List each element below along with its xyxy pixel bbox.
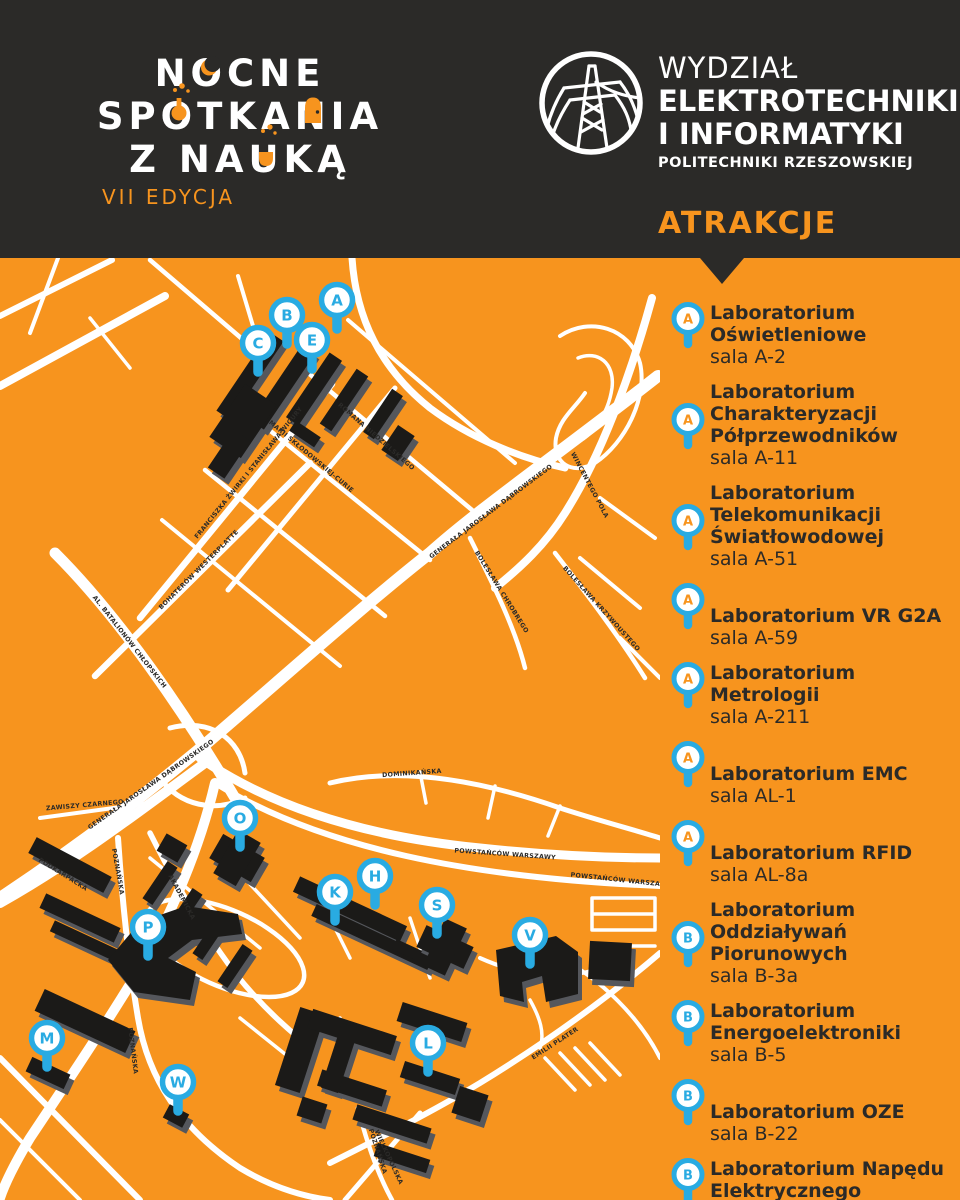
location-pin-icon: B [670, 921, 710, 971]
attraction-item-B-22: B Laboratorium OZE sala B-22 [670, 1079, 960, 1145]
attraction-item-A-59: A Laboratorium VR G2A sala A-59 [670, 583, 960, 649]
faculty-name-line2: ELEKTROTECHNIKI [658, 87, 959, 116]
attraction-item-A-2: A Laboratorium Oświetleniowe sala A-2 [670, 302, 960, 368]
svg-text:A: A [331, 292, 343, 310]
location-pin-icon: B [670, 1158, 710, 1200]
svg-text:V: V [524, 927, 536, 945]
location-pin-icon: A [670, 583, 710, 633]
brand-line-3: Z NAUKĄ [72, 138, 408, 181]
location-pin-icon: A [670, 504, 710, 554]
svg-text:H: H [369, 868, 382, 886]
svg-text:B: B [683, 1169, 693, 1184]
faculty-name-line1: WYDZIAŁ [658, 54, 959, 83]
svg-text:A: A [683, 831, 693, 846]
attraction-title: Laboratorium Metrologii [710, 662, 950, 706]
svg-text:E: E [307, 332, 317, 350]
brand-line-2: SPOTKANIA [72, 95, 408, 138]
attraction-item-A-51: A Laboratorium Telekomunikacji Światłowo… [670, 482, 960, 570]
svg-text:O: O [234, 810, 247, 828]
svg-text:A: A [683, 515, 693, 530]
svg-text:B: B [281, 307, 292, 325]
attraction-room: sala B-5 [710, 1044, 950, 1066]
edition-label: VII EDYCJA [72, 185, 408, 209]
attraction-list: A Laboratorium Oświetleniowe sala A-2 A … [660, 258, 960, 1200]
attraction-room: sala B-3a [710, 965, 950, 987]
faculty-name-line3: I INFORMATYKI [658, 120, 959, 149]
attraction-room: sala A-11 [710, 447, 950, 469]
attraction-item-AL-8a: A Laboratorium RFID sala AL-8a [670, 820, 960, 886]
attraction-room: sala AL-8a [710, 864, 950, 886]
attraction-title: Laboratorium Telekomunikacji Światłowodo… [710, 482, 950, 548]
street-label: GENERAŁA JAROSŁAWA DĄBROWSKIEGO [87, 738, 216, 831]
attraction-title: Laboratorium Oświetleniowe [710, 302, 950, 346]
svg-text:B: B [683, 932, 693, 947]
attraction-title: Laboratorium Energoelektroniki [710, 1000, 950, 1044]
attraction-title: Laboratorium VR G2A [710, 605, 950, 627]
svg-text:A: A [683, 313, 693, 328]
svg-text:L: L [423, 1035, 433, 1053]
location-pin-icon: A [670, 662, 710, 712]
svg-text:A: A [683, 752, 693, 767]
brand-line-1: NOCNE [72, 52, 408, 95]
event-logo: NOCNE SPOTKANIA Z NAUKĄ VII EDYCJA [72, 52, 408, 209]
attraction-item-B-50: B Laboratorium Napędu Elektrycznego sala… [670, 1158, 960, 1200]
svg-text:A: A [683, 414, 693, 429]
attraction-room: sala A-2 [710, 346, 950, 368]
svg-text:S: S [432, 897, 443, 915]
faculty-name-line4: POLITECHNIKI RZESZOWSKIEJ [658, 156, 959, 171]
attraction-title: Laboratorium EMC [710, 763, 950, 785]
svg-text:B: B [683, 1090, 693, 1105]
location-pin-icon: A [670, 302, 710, 352]
attraction-item-B-3a: B Laboratorium Oddziaływań Piorunowych s… [670, 899, 960, 987]
attraction-item-A-11: A Laboratorium Charakteryzacji Półprzewo… [670, 381, 960, 469]
event-map-poster: NOCNE SPOTKANIA Z NAUKĄ VII EDYCJA [0, 0, 960, 1200]
header-bar: NOCNE SPOTKANIA Z NAUKĄ VII EDYCJA [0, 0, 960, 258]
street-label: MARII SKŁODOWSKIEJ-CURIE [267, 419, 355, 494]
map-marker-W[interactable]: W [163, 1067, 194, 1112]
attraction-room: sala A-211 [710, 706, 950, 728]
street-label: AL. BATALIONÓW CHŁOPSKICH [91, 593, 169, 690]
attraction-room: sala A-51 [710, 548, 950, 570]
campus-map: FRANCISZKA ŻWIRKI I STANISŁAWA WIGURYMAR… [0, 258, 660, 1200]
attractions-heading: ATRAKCJE [658, 206, 837, 241]
svg-text:C: C [252, 335, 263, 353]
location-pin-icon: B [670, 1079, 710, 1129]
location-pin-icon: A [670, 403, 710, 453]
map-marker-H[interactable]: H [360, 861, 391, 906]
svg-text:A: A [683, 594, 693, 609]
svg-text:B: B [683, 1011, 693, 1026]
attraction-room: sala B-22 [710, 1123, 950, 1145]
svg-text:W: W [170, 1074, 187, 1092]
attraction-title: Laboratorium Charakteryzacji Półprzewodn… [710, 381, 950, 447]
svg-text:M: M [40, 1030, 55, 1048]
attraction-title: Laboratorium Napędu Elektrycznego [710, 1158, 950, 1200]
attraction-title: Laboratorium OZE [710, 1101, 950, 1123]
location-pin-icon: A [670, 741, 710, 791]
svg-text:P: P [143, 919, 154, 937]
location-pin-icon: A [670, 820, 710, 870]
svg-text:A: A [683, 673, 693, 688]
svg-text:K: K [329, 884, 342, 902]
attraction-room: sala AL-1 [710, 785, 950, 807]
power-pylon-icon [536, 48, 646, 158]
attraction-title: Laboratorium Oddziaływań Piorunowych [710, 899, 950, 965]
attraction-item-A-211: A Laboratorium Metrologii sala A-211 [670, 662, 960, 728]
attraction-room: sala A-59 [710, 627, 950, 649]
attraction-item-B-5: B Laboratorium Energoelektroniki sala B-… [670, 1000, 960, 1066]
location-pin-icon: B [670, 1000, 710, 1050]
attraction-item-AL-1: A Laboratorium EMC sala AL-1 [670, 741, 960, 807]
map-streets [0, 258, 660, 1200]
attraction-title: Laboratorium RFID [710, 842, 950, 864]
